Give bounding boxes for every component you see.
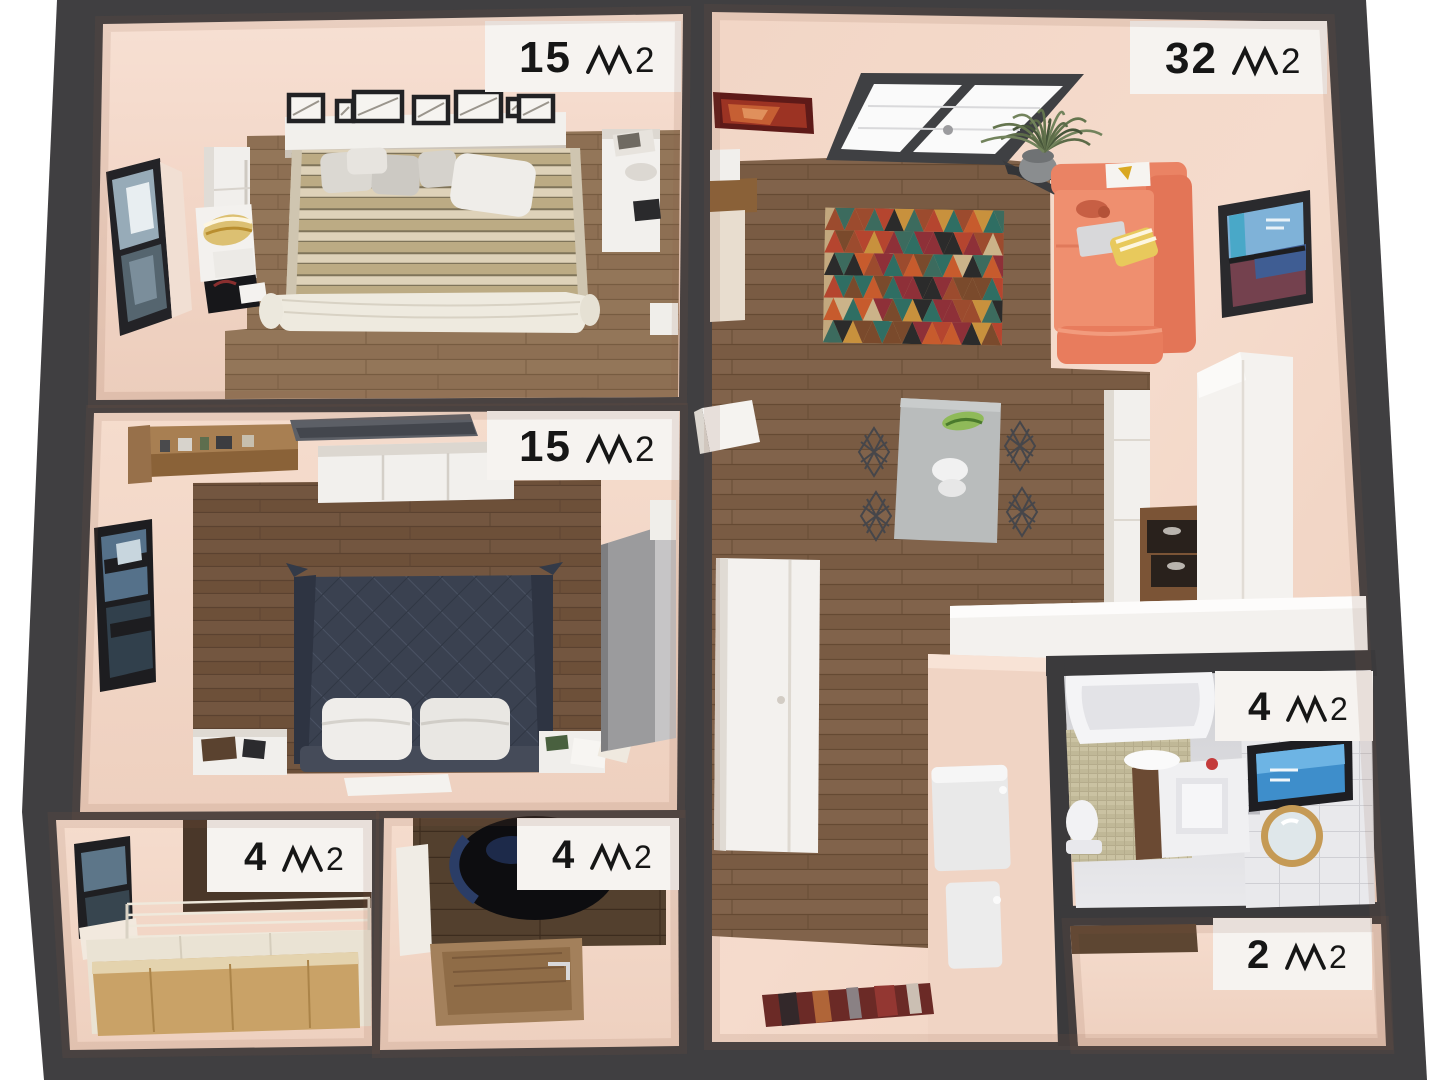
svg-text:2: 2 <box>1330 691 1348 727</box>
svg-text:4: 4 <box>244 835 268 879</box>
svg-text:2: 2 <box>634 839 652 875</box>
svg-text:2: 2 <box>1329 939 1347 975</box>
svg-text:4: 4 <box>1248 685 1272 729</box>
svg-text:2: 2 <box>1247 933 1271 977</box>
svg-text:2: 2 <box>635 41 654 80</box>
svg-text:2: 2 <box>1281 42 1300 81</box>
svg-text:15: 15 <box>519 33 572 82</box>
svg-text:2: 2 <box>635 430 654 469</box>
svg-text:4: 4 <box>552 833 576 877</box>
svg-text:2: 2 <box>326 841 344 877</box>
svg-text:15: 15 <box>519 422 572 471</box>
svg-text:32: 32 <box>1165 34 1218 83</box>
